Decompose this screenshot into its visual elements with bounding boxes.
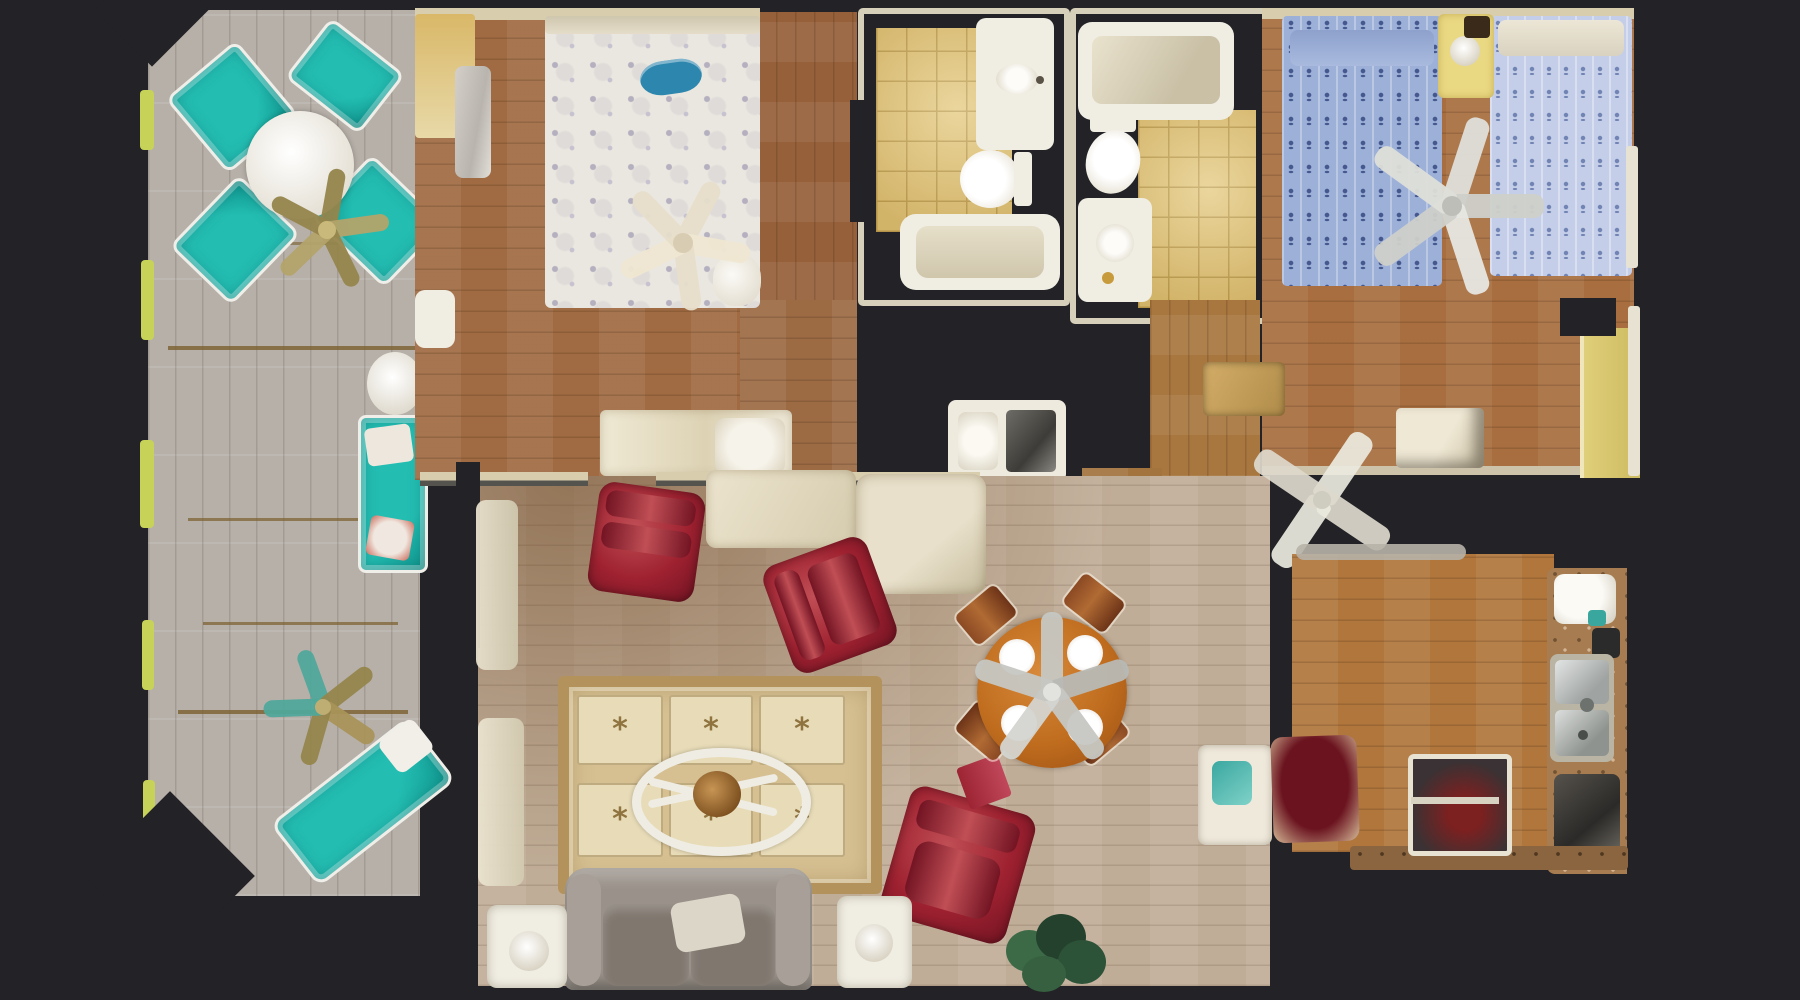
- master-bedroom-floor-strip: [757, 12, 857, 302]
- palm-motif: *: [794, 715, 810, 745]
- fan-hub: [673, 233, 693, 253]
- maroon-mat: [1270, 735, 1360, 844]
- wall-notch: [1560, 298, 1616, 336]
- sink-basin: [1555, 660, 1609, 704]
- armchair-burgundy: [586, 480, 707, 604]
- living-room: * * * * * *: [420, 460, 1272, 1000]
- bronze-decor: [693, 771, 741, 817]
- loveseat-pillow: [364, 423, 415, 467]
- bathroom2-bathtub: [1078, 22, 1234, 120]
- bathroom1-toilet: [960, 150, 1020, 208]
- living-top-wall: [420, 472, 588, 486]
- left-wall-cabinet: [476, 500, 518, 670]
- hall-table: [1203, 362, 1285, 416]
- bathtub-basin: [1092, 36, 1220, 104]
- toilet-tank: [1014, 152, 1032, 206]
- top-clutter-console: [706, 470, 856, 548]
- rug-panel: *: [759, 695, 845, 765]
- armchair-cushion: [604, 489, 697, 527]
- dollhouse-floorplan: * * * * * *: [0, 0, 1800, 1000]
- fan-hub: [1043, 683, 1061, 701]
- couch: [565, 868, 812, 990]
- left-wall-cabinet: [478, 718, 524, 886]
- coffee-table: [632, 748, 811, 856]
- doorway-gap: [850, 100, 872, 222]
- table-lamp: [509, 931, 549, 971]
- dish-rack: [1554, 574, 1616, 624]
- gold-drain: [1102, 272, 1114, 284]
- palm-motif: *: [612, 805, 628, 835]
- shelf-cabinet: [1408, 754, 1512, 856]
- side-table: [837, 896, 912, 988]
- faucet: [1036, 76, 1044, 84]
- deck-gap: [168, 346, 418, 350]
- faucet: [1580, 698, 1594, 712]
- twin-bed-left-pillow: [1290, 30, 1434, 66]
- vanity-sink-bowl: [996, 64, 1038, 94]
- porch-edge-foliage: [141, 260, 154, 340]
- bathroom2-toilet: [1079, 124, 1147, 199]
- bathroom1-bathtub: [900, 214, 1060, 290]
- vanity-sink-bowl: [1096, 224, 1134, 262]
- bathroom-2: [1070, 8, 1276, 324]
- fan-hub: [318, 221, 336, 239]
- kids-bedroom: [1262, 8, 1644, 480]
- plant-foliage: [1022, 956, 1066, 992]
- twin-bed-right-pillow: [1498, 20, 1624, 56]
- side-table: [487, 905, 567, 988]
- armchair-cushion: [902, 838, 1004, 922]
- bathroom2-tile-floor: [1138, 110, 1256, 308]
- nightstand-lamp: [1450, 36, 1480, 66]
- right-wall-strip: [1628, 306, 1640, 476]
- master-bedroom: [415, 8, 860, 482]
- potted-plant: [1000, 912, 1110, 994]
- porch-edge-foliage: [140, 440, 154, 528]
- fan-hub: [1442, 196, 1462, 216]
- loveseat-pillow: [365, 514, 415, 561]
- porch-edge-foliage: [140, 90, 154, 150]
- teal-towel: [1212, 761, 1252, 805]
- fan-hub: [315, 699, 331, 715]
- porch-edge-foliage: [142, 620, 154, 690]
- armchair-cushion: [600, 521, 693, 559]
- rug-panel: *: [577, 695, 663, 765]
- porch: [148, 10, 420, 896]
- bedroom-white-fixture: [415, 290, 455, 348]
- palm-motif: *: [703, 715, 719, 745]
- sink-drain: [1578, 730, 1588, 740]
- teal-dish: [1588, 610, 1606, 626]
- deck-gap: [188, 518, 368, 521]
- right-wall-strip: [1626, 146, 1638, 268]
- fan-hub: [1313, 491, 1331, 509]
- kitchen-sink: [1550, 654, 1614, 762]
- ceiling-fragment: [1296, 544, 1466, 560]
- table-lamp: [855, 924, 893, 962]
- bathtub-basin: [916, 226, 1044, 278]
- palm-motif: *: [612, 715, 628, 745]
- bed-headboard: [545, 16, 760, 34]
- dark-notch: [1464, 16, 1490, 38]
- bathroom-1: [858, 8, 1070, 306]
- window-drape: [455, 66, 491, 178]
- bathroom2-vanity: [1078, 198, 1152, 302]
- kids-dresser: [1396, 408, 1484, 468]
- couch-arm: [567, 874, 601, 986]
- kids-nightstand: [1438, 14, 1494, 98]
- cabinet-shelf: [1411, 797, 1499, 804]
- cooktop-items: [1554, 774, 1620, 856]
- deck-gap: [203, 622, 398, 625]
- bathroom1-vanity: [976, 18, 1054, 150]
- toilet-tank: [1090, 110, 1136, 132]
- couch-arm: [776, 874, 810, 986]
- white-cabinet: [1198, 745, 1272, 845]
